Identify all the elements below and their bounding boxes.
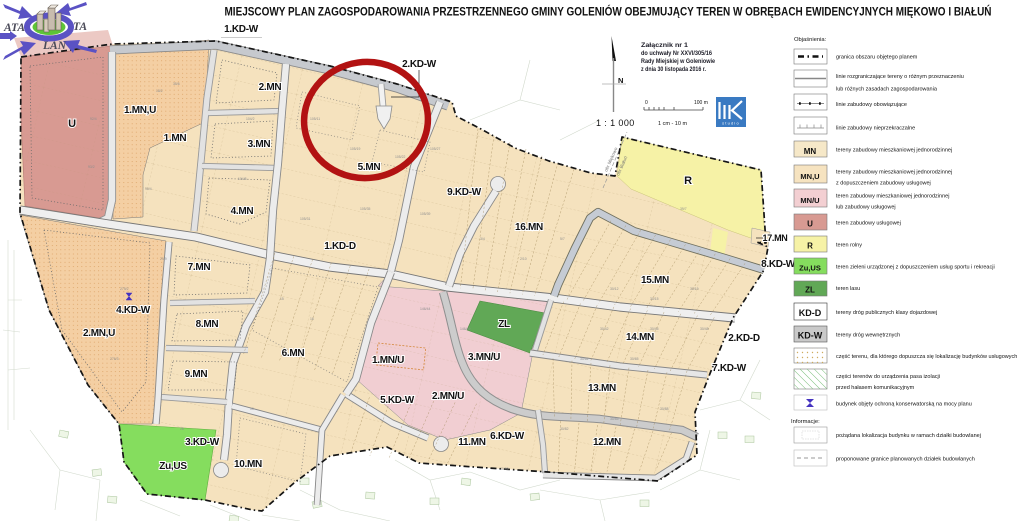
svg-text:30/62: 30/62: [580, 357, 589, 361]
svg-text:N: N: [618, 76, 623, 85]
svg-text:tereny dróg wewnętrznych: tereny dróg wewnętrznych: [836, 333, 900, 339]
svg-text:104/2: 104/2: [246, 117, 255, 121]
svg-text:100 m: 100 m: [694, 100, 708, 106]
svg-text:39/7: 39/7: [680, 207, 687, 211]
svg-text:7.MN: 7.MN: [188, 262, 211, 273]
svg-text:studio: studio: [722, 121, 740, 126]
svg-text:29/9: 29/9: [160, 257, 167, 261]
svg-text:ZL: ZL: [498, 319, 510, 330]
svg-text:przed hałasem komunikacyjnym: przed hałasem komunikacyjnym: [836, 385, 915, 391]
svg-text:30/88: 30/88: [660, 407, 669, 411]
svg-text:10.MN: 10.MN: [234, 459, 262, 470]
svg-text:części terenów do urządzenia p: części terenów do urządzenia pasa izolac…: [836, 374, 940, 380]
svg-text:ATA: ATA: [3, 22, 25, 34]
svg-text:92/4: 92/4: [90, 117, 97, 121]
svg-text:15.MN: 15.MN: [641, 275, 669, 286]
svg-text:5/7: 5/7: [560, 237, 565, 241]
svg-text:3.MN/U: 3.MN/U: [468, 352, 500, 363]
svg-text:12.MN: 12.MN: [593, 437, 621, 448]
svg-text:5.KD-W: 5.KD-W: [380, 395, 415, 406]
svg-text:10: 10: [250, 407, 254, 411]
svg-text:1 : 1 000: 1 : 1 000: [596, 118, 635, 128]
svg-text:z dnia 30 listopada 2016 r.: z dnia 30 listopada 2016 r.: [641, 66, 706, 73]
svg-text:1.MN,U: 1.MN,U: [124, 105, 156, 116]
svg-text:MN/U: MN/U: [800, 196, 819, 205]
svg-text:teren zieleni urządzonej z dop: teren zieleni urządzonej z dopuszczeniem…: [836, 265, 995, 271]
svg-text:105/11: 105/11: [310, 117, 320, 121]
svg-text:18/2: 18/2: [156, 89, 163, 93]
svg-text:KD-D: KD-D: [799, 308, 822, 318]
svg-text:7.KD-W: 7.KD-W: [712, 363, 747, 374]
svg-text:4.KD-W: 4.KD-W: [116, 305, 151, 316]
svg-text:4.MN: 4.MN: [231, 206, 254, 217]
svg-text:13.MN: 13.MN: [588, 383, 616, 394]
svg-text:30/65: 30/65: [630, 357, 639, 361]
svg-text:teren lasu: teren lasu: [836, 286, 860, 292]
svg-text:1 cm - 10 m: 1 cm - 10 m: [658, 121, 687, 127]
svg-text:30/48: 30/48: [700, 327, 709, 331]
svg-text:5.MN: 5.MN: [358, 162, 381, 173]
svg-text:R: R: [807, 242, 813, 251]
svg-text:3.KD-W: 3.KD-W: [185, 437, 220, 448]
svg-text:R: R: [684, 175, 692, 187]
svg-text:lub różnych zasadach zagospoda: lub różnych zasadach zagospodarowania: [836, 87, 938, 93]
svg-text:Informacje:: Informacje:: [791, 419, 820, 425]
svg-text:28: 28: [180, 427, 184, 431]
svg-text:z dopuszczeniem zabudowy usług: z dopuszczeniem zabudowy usługowej: [836, 181, 931, 187]
svg-text:tereny dróg publicznych klasy: tereny dróg publicznych klasy dojazdowej: [836, 310, 937, 316]
svg-text:30/45: 30/45: [650, 327, 659, 331]
svg-text:279/2: 279/2: [120, 287, 129, 291]
svg-text:U: U: [68, 118, 76, 130]
svg-text:1.MN: 1.MN: [164, 133, 187, 144]
svg-text:30/95: 30/95: [500, 467, 509, 471]
svg-text:linie rozgraniczające tereny o: linie rozgraniczające tereny o różnym pr…: [836, 74, 964, 80]
svg-text:93/2: 93/2: [88, 165, 95, 169]
svg-text:9.MN: 9.MN: [185, 369, 208, 380]
svg-text:30/12: 30/12: [610, 287, 619, 291]
svg-text:KD-W: KD-W: [798, 331, 823, 341]
svg-text:LAN: LAN: [42, 40, 67, 52]
svg-text:2.MN/U: 2.MN/U: [432, 391, 464, 402]
svg-text:Zu,US: Zu,US: [799, 264, 821, 273]
svg-text:2/10: 2/10: [520, 257, 527, 261]
svg-text:TA: TA: [73, 21, 87, 33]
svg-text:17.MN: 17.MN: [762, 233, 787, 243]
svg-text:2.KD-W: 2.KD-W: [402, 59, 437, 70]
svg-text:teren zabudowy usługowej: teren zabudowy usługowej: [836, 221, 901, 227]
svg-text:8.MN: 8.MN: [196, 319, 219, 330]
svg-text:30/42: 30/42: [600, 327, 609, 331]
svg-text:105/19: 105/19: [350, 147, 360, 151]
svg-text:35/6: 35/6: [173, 82, 180, 86]
svg-text:14.MN: 14.MN: [626, 332, 654, 343]
svg-text:1.MN/U: 1.MN/U: [372, 355, 404, 366]
svg-text:lub zabudowy usługowej: lub zabudowy usługowej: [836, 205, 896, 211]
svg-text:105/27: 105/27: [430, 147, 440, 151]
svg-text:11.MN: 11.MN: [458, 437, 485, 448]
svg-text:tereny zabudowy mieszkaniowej: tereny zabudowy mieszkaniowej jednorodzi…: [836, 170, 952, 176]
svg-text:1.KD-W: 1.KD-W: [224, 24, 259, 35]
svg-text:30/85: 30/85: [610, 417, 619, 421]
svg-text:Załącznik nr 1: Załącznik nr 1: [641, 42, 689, 49]
svg-text:30/19: 30/19: [690, 287, 699, 291]
svg-text:16: 16: [310, 317, 314, 321]
svg-text:2.KD-D: 2.KD-D: [728, 333, 760, 344]
svg-text:276/3: 276/3: [110, 357, 119, 361]
svg-text:0: 0: [645, 100, 648, 106]
svg-text:teren zabudowy mieszkaniowej j: teren zabudowy mieszkaniowej jednorodzin…: [836, 194, 949, 200]
svg-text:105/39: 105/39: [420, 212, 430, 216]
svg-text:tereny zabudowy mieszkaniowej: tereny zabudowy mieszkaniowej jednorodzi…: [836, 148, 952, 154]
svg-text:U: U: [807, 220, 813, 229]
svg-text:104/8: 104/8: [238, 177, 247, 181]
svg-text:9.KD-W: 9.KD-W: [447, 187, 482, 198]
svg-text:teren rolny: teren rolny: [836, 243, 862, 249]
svg-text:proponowane granice planowanyc: proponowane granice planowanych działek …: [836, 457, 975, 463]
svg-text:2.MN,U: 2.MN,U: [83, 328, 115, 339]
svg-text:granica obszaru objętego plane: granica obszaru objętego planem: [836, 55, 918, 61]
svg-text:linie zabudowy nieprzekraczaln: linie zabudowy nieprzekraczalne: [836, 126, 915, 132]
svg-text:1.KD-D: 1.KD-D: [324, 241, 356, 252]
svg-text:6.MN: 6.MN: [282, 348, 305, 359]
svg-text:Rady Miejskiej w Goleniowie: Rady Miejskiej w Goleniowie: [641, 58, 715, 65]
svg-text:16.MN: 16.MN: [515, 222, 543, 233]
svg-text:MIEJSCOWY PLAN ZAGOSPODAROWANI: MIEJSCOWY PLAN ZAGOSPODAROWANIA PRZESTRZ…: [225, 4, 992, 19]
svg-text:90/4: 90/4: [145, 187, 152, 191]
svg-text:15: 15: [280, 297, 284, 301]
svg-text:do uchwały Nr XXVI/305/16: do uchwały Nr XXVI/305/16: [641, 50, 712, 57]
svg-text:8.KD-W: 8.KD-W: [761, 259, 796, 270]
svg-text:budynek objęty ochroną konserw: budynek objęty ochroną konserwatorską na…: [836, 402, 972, 408]
svg-text:30/82: 30/82: [560, 427, 569, 431]
svg-text:3.MN: 3.MN: [248, 139, 271, 150]
svg-text:pożądana lokalizacja budynku w: pożądana lokalizacja budynku w ramach dz…: [836, 433, 981, 439]
svg-text:MN: MN: [804, 147, 817, 156]
svg-text:ZL: ZL: [805, 286, 815, 295]
svg-text:linie zabudowy obowiązujące: linie zabudowy obowiązujące: [836, 102, 907, 108]
svg-text:105/35: 105/35: [360, 207, 370, 211]
svg-text:2.MN: 2.MN: [259, 82, 282, 93]
svg-text:Objaśnienia:: Objaśnienia:: [794, 37, 827, 43]
svg-text:146/44: 146/44: [420, 307, 430, 311]
svg-text:część terenu, dla którego dopu: część terenu, dla którego dopuszcza się …: [836, 354, 1017, 360]
svg-text:MN,U: MN,U: [800, 172, 819, 181]
svg-text:Zu,US: Zu,US: [159, 461, 187, 472]
svg-text:30/15: 30/15: [650, 297, 659, 301]
svg-text:105/22: 105/22: [395, 155, 405, 159]
svg-text:105/31: 105/31: [300, 217, 310, 221]
svg-text:146/49: 146/49: [460, 327, 470, 331]
svg-text:6.KD-W: 6.KD-W: [490, 431, 525, 442]
svg-text:3/4: 3/4: [480, 237, 485, 241]
